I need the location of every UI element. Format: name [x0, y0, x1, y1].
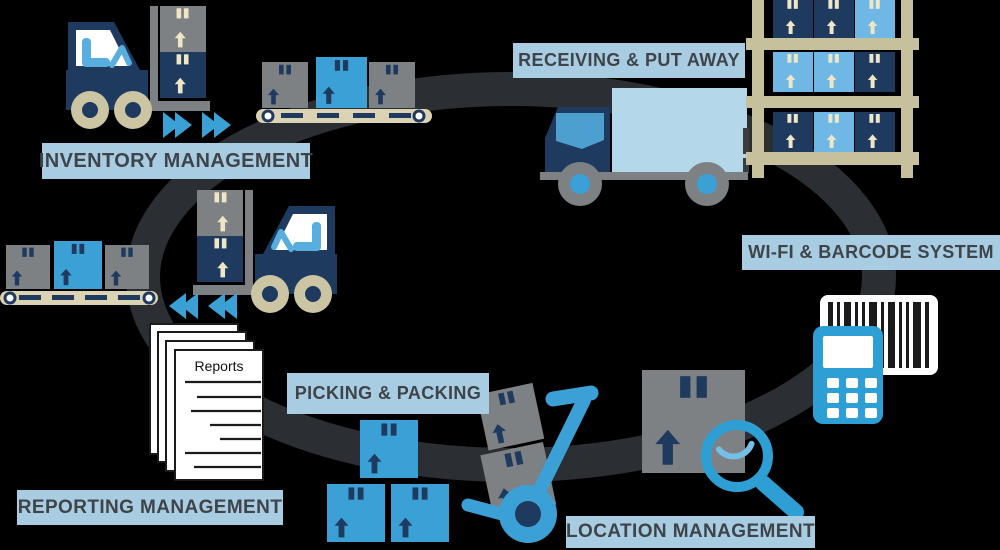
- label-wifi-barcode-system: WI-FI & BARCODE SYSTEM: [742, 235, 1000, 270]
- forklift-icon-2: [193, 190, 337, 313]
- reports-document-icon: Reports: [150, 324, 263, 480]
- label-picking-packing: PICKING & PACKING: [287, 373, 489, 414]
- diagram-canvas: Reports: [0, 0, 1000, 550]
- label-reporting-management: REPORTING MANAGEMENT: [17, 490, 283, 525]
- reports-title: Reports: [194, 358, 243, 374]
- label-inventory-management: INVENTORY MANAGEMENT: [42, 143, 310, 179]
- back-arrows-icon: [169, 293, 237, 319]
- wms-cycle-diagram: Reports: [0, 0, 1000, 550]
- barcode-scanner-icon: [813, 326, 883, 424]
- forklift-icon: [66, 6, 210, 129]
- conveyor-icon: [256, 57, 432, 123]
- label-receiving-put-away: RECEIVING & PUT AWAY: [513, 43, 745, 78]
- label-location-management: LOCATION MANAGEMENT: [566, 516, 815, 548]
- conveyor-icon-2: [0, 241, 158, 305]
- forward-arrows-icon: [163, 112, 231, 138]
